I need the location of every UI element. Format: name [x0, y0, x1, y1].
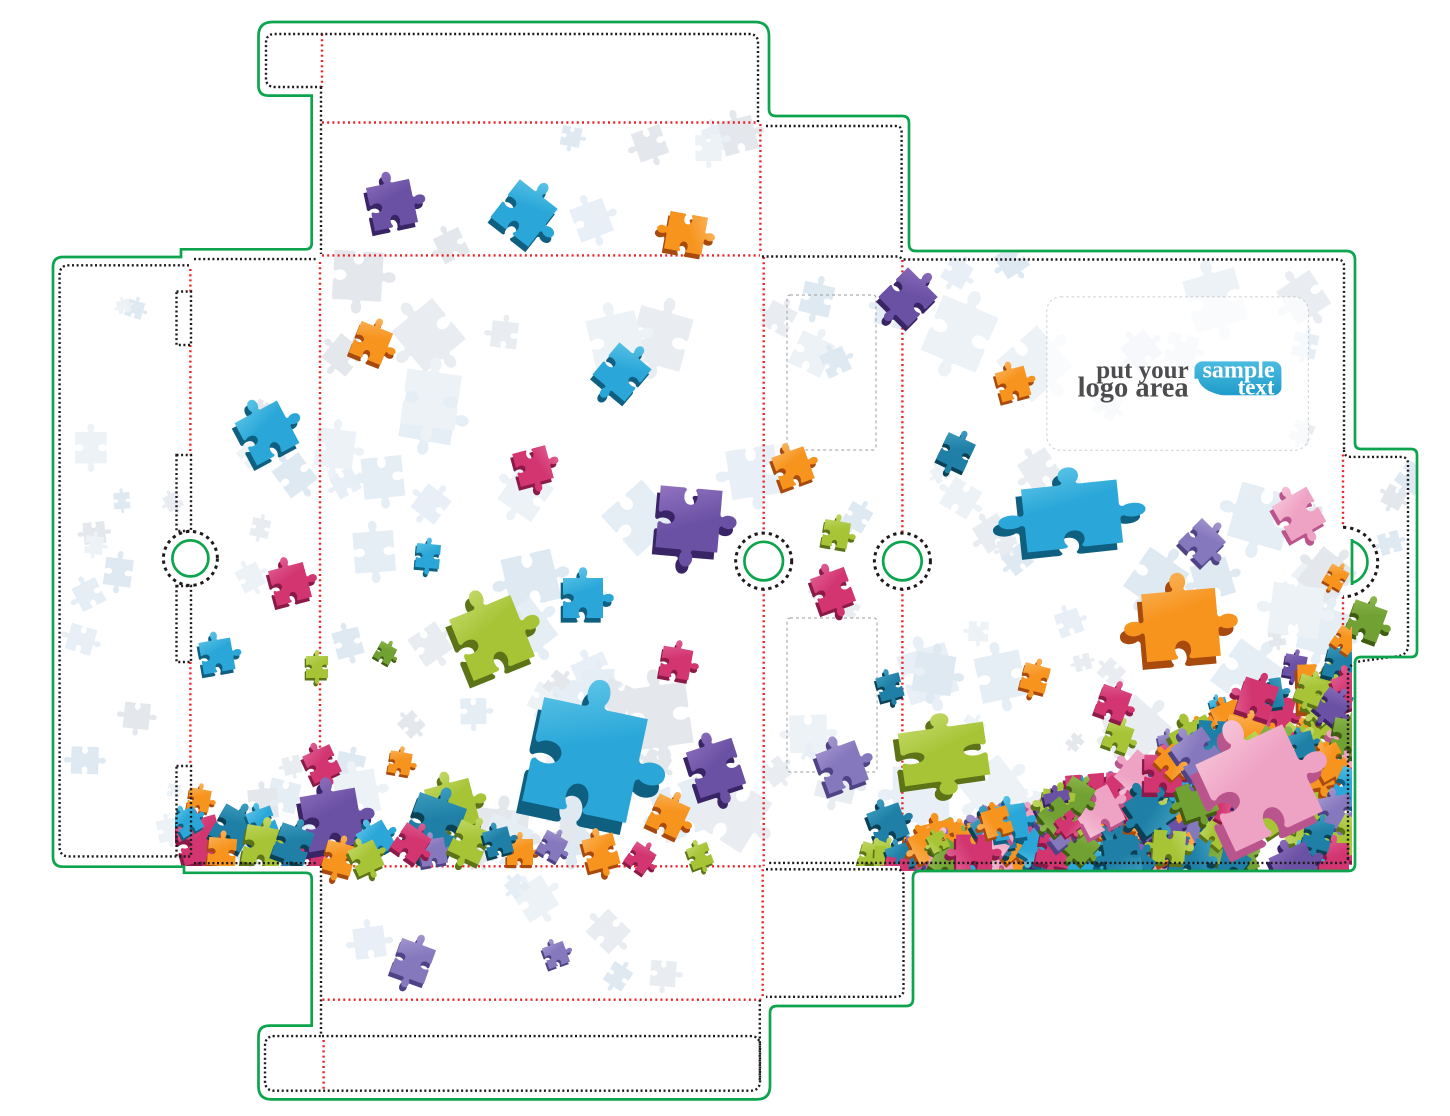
svg-text:text: text — [1238, 375, 1275, 400]
svg-text:logo area: logo area — [1078, 373, 1189, 404]
